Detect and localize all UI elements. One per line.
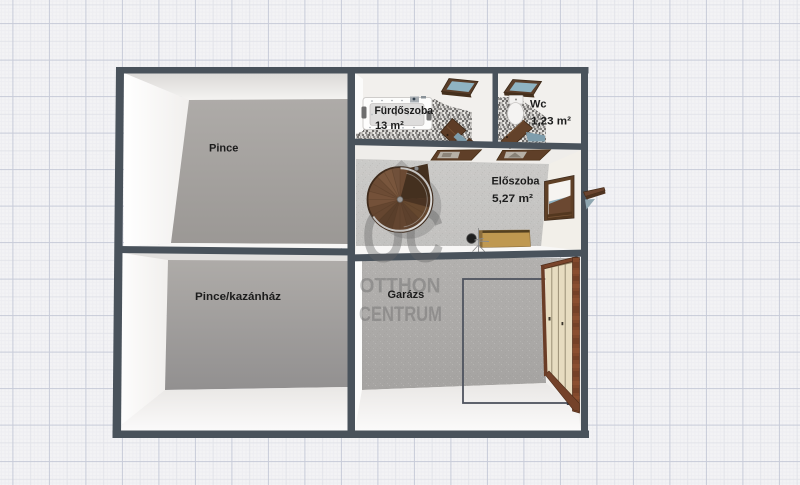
svg-text:Pince: Pince (209, 143, 238, 155)
svg-text:Garázs: Garázs (388, 289, 425, 301)
svg-text:OC: OC (362, 194, 444, 279)
svg-text:5,27 m²: 5,27 m² (492, 193, 533, 205)
svg-text:CENTRUM: CENTRUM (359, 303, 442, 326)
svg-text:Fürdőszoba: Fürdőszoba (375, 105, 434, 117)
svg-text:Pince/kazánház: Pince/kazánház (195, 291, 282, 303)
svg-text:13 m²: 13 m² (375, 120, 404, 132)
svg-text:Előszoba: Előszoba (492, 176, 541, 188)
svg-text:Wc: Wc (530, 99, 547, 111)
svg-text:1,23 m²: 1,23 m² (531, 116, 571, 128)
